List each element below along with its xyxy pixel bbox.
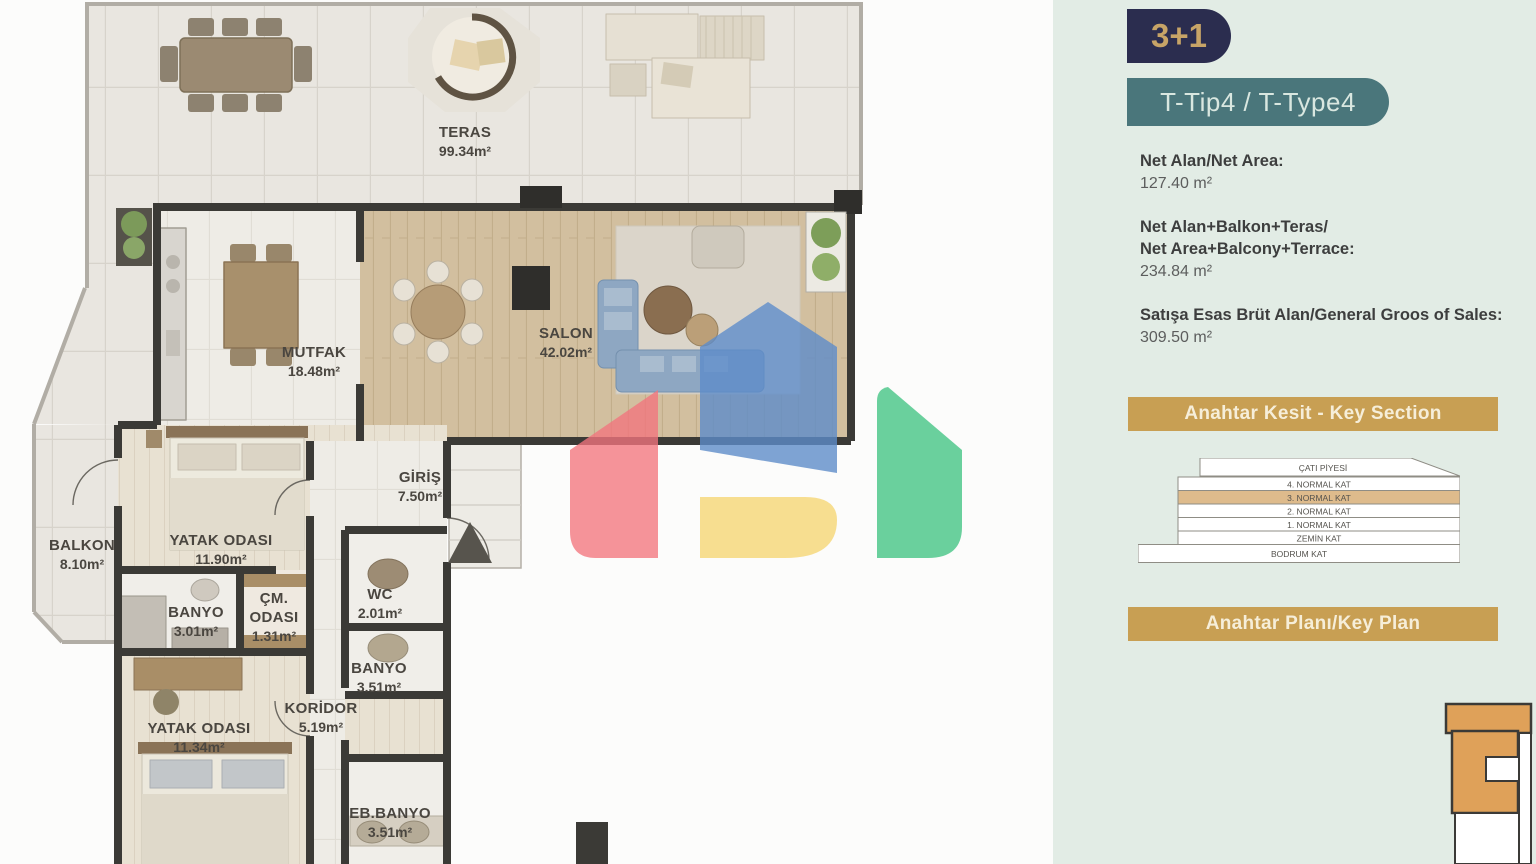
room-label-koridor: KORİDOR5.19m² [285,681,358,736]
stat-value: 309.50 m² [1140,326,1530,349]
room-label-mutfak: MUTFAK18.48m² [282,325,346,380]
stat-label: Net Alan/Net Area: [1140,150,1530,172]
room-label-salon: SALON42.02m² [539,306,593,361]
kitchen-counter [160,228,186,420]
logo-green-shape [877,387,962,558]
plan-type-badge: T-Tip4 / T-Type4 [1127,78,1389,126]
stat-value: 127.40 m² [1140,172,1530,195]
key-plan-diagram [1383,697,1536,864]
stat-value: 234.84 m² [1140,260,1530,283]
stat-net-plus-terrace: Net Alan+Balkon+Teras/ Net Area+Balcony+… [1140,216,1530,283]
key-section-diagram: ÇATI PİYESİ 4. NORMAL KAT 3. NORMAL KAT … [1138,458,1460,563]
armchair [692,226,744,268]
room-label-yatak-odasi-2: YATAK ODASI11.34m² [147,701,250,756]
room-label-wc: WC2.01m² [358,567,402,622]
key-plan-banner: Anahtar Planı/Key Plan [1128,607,1498,641]
room-label-teras: TERAS99.34m² [439,105,491,160]
stat-label: Net Alan+Balkon+Teras/ Net Area+Balcony+… [1140,216,1530,260]
logo-yellow-shape [700,497,837,558]
room-label-eb-yatak-odasi: EB.YATAK ODASI [258,852,387,864]
fireplace [512,266,550,310]
egg-chair [408,8,540,112]
coffee-table [644,286,692,334]
svg-text:BODRUM KAT: BODRUM KAT [1271,549,1327,559]
room-label-giris: GİRİŞ7.50m² [398,450,442,505]
room-label-yatak-odasi-1: YATAK ODASI11.90m² [169,513,272,568]
room-label-balkon: BALKON8.10m² [49,518,115,573]
key-plan-room-lower [1455,813,1519,864]
svg-text:4. NORMAL KAT: 4. NORMAL KAT [1287,480,1351,490]
svg-text:2. NORMAL KAT: 2. NORMAL KAT [1287,507,1351,517]
info-sidebar: 3+1 T-Tip4 / T-Type4 Net Alan/Net Area: … [1053,0,1536,864]
room-label-cm-odasi: ÇM. ODASI1.31m² [249,571,298,645]
svg-text:ZEMİN KAT: ZEMİN KAT [1297,534,1342,544]
room-label-banyo-1: BANYO3.01m² [168,585,224,640]
room-label-eb-banyo: EB.BANYO3.51m² [349,786,431,841]
svg-text:ÇATI PİYESİ: ÇATI PİYESİ [1299,463,1348,473]
unit-type-badge: 3+1 [1127,9,1231,63]
room-label-banyo-2: BANYO3.51m² [351,641,407,696]
key-plan-room [1486,757,1520,781]
key-plan-shaft [1519,733,1531,864]
bed-2 [138,742,292,864]
stat-net-area: Net Alan/Net Area: 127.40 m² [1140,150,1530,195]
wall-block [576,822,608,864]
svg-text:1. NORMAL KAT: 1. NORMAL KAT [1287,520,1351,530]
floorplan-page: TERAS99.34m² MUTFAK18.48m² SALON42.02m² … [0,0,1536,864]
stat-label: Satışa Esas Brüt Alan/General Groos of S… [1140,304,1530,326]
stat-gross-sales-area: Satışa Esas Brüt Alan/General Groos of S… [1140,304,1530,349]
key-plan-unit-top [1446,704,1531,733]
key-section-banner: Anahtar Kesit - Key Section [1128,397,1498,431]
svg-text:3. NORMAL KAT: 3. NORMAL KAT [1287,493,1351,503]
